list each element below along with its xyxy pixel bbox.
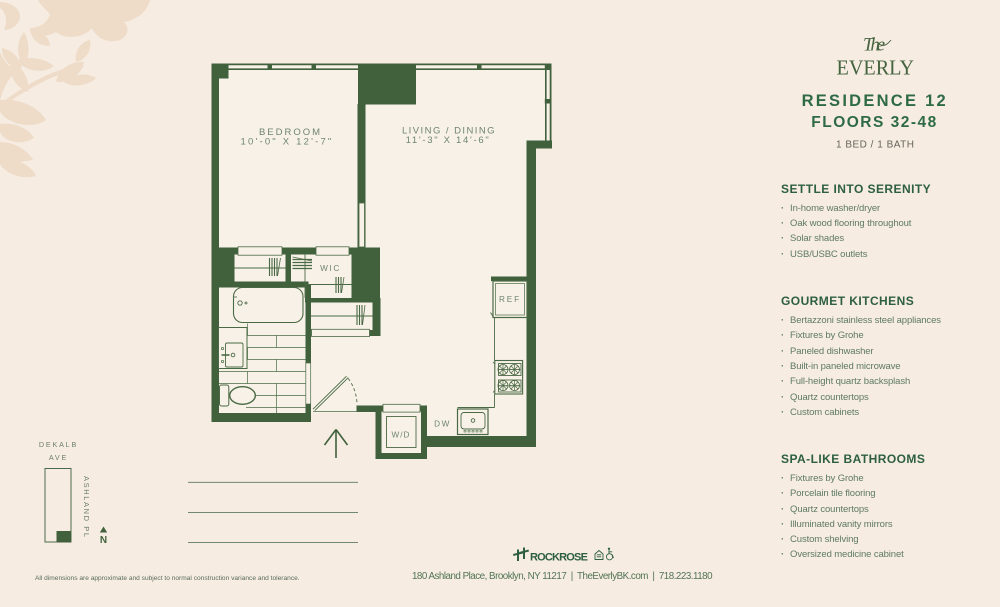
svg-text:AVE: AVE bbox=[49, 453, 68, 462]
svg-text:DEKALB: DEKALB bbox=[39, 440, 78, 449]
svg-text:REF: REF bbox=[499, 295, 521, 304]
svg-text:10'-0" X 12'-7": 10'-0" X 12'-7" bbox=[240, 136, 333, 147]
svg-text:W/D: W/D bbox=[392, 431, 411, 440]
svg-text:WIC: WIC bbox=[320, 264, 341, 273]
svg-text:1 BED / 1 BATH: 1 BED / 1 BATH bbox=[836, 139, 915, 150]
svg-text:RESIDENCE 12: RESIDENCE 12 bbox=[802, 92, 948, 110]
svg-text:DW: DW bbox=[434, 420, 451, 429]
svg-text:ASHLAND PL: ASHLAND PL bbox=[82, 476, 91, 539]
svg-text:N: N bbox=[100, 535, 107, 546]
svg-text:EVERLY: EVERLY bbox=[837, 56, 915, 80]
svg-text:FLOORS 32-48: FLOORS 32-48 bbox=[811, 114, 937, 131]
svg-text:11'-3" X 14'-6": 11'-3" X 14'-6" bbox=[406, 135, 491, 146]
svg-text:ROCKROSE: ROCKROSE bbox=[530, 552, 588, 564]
